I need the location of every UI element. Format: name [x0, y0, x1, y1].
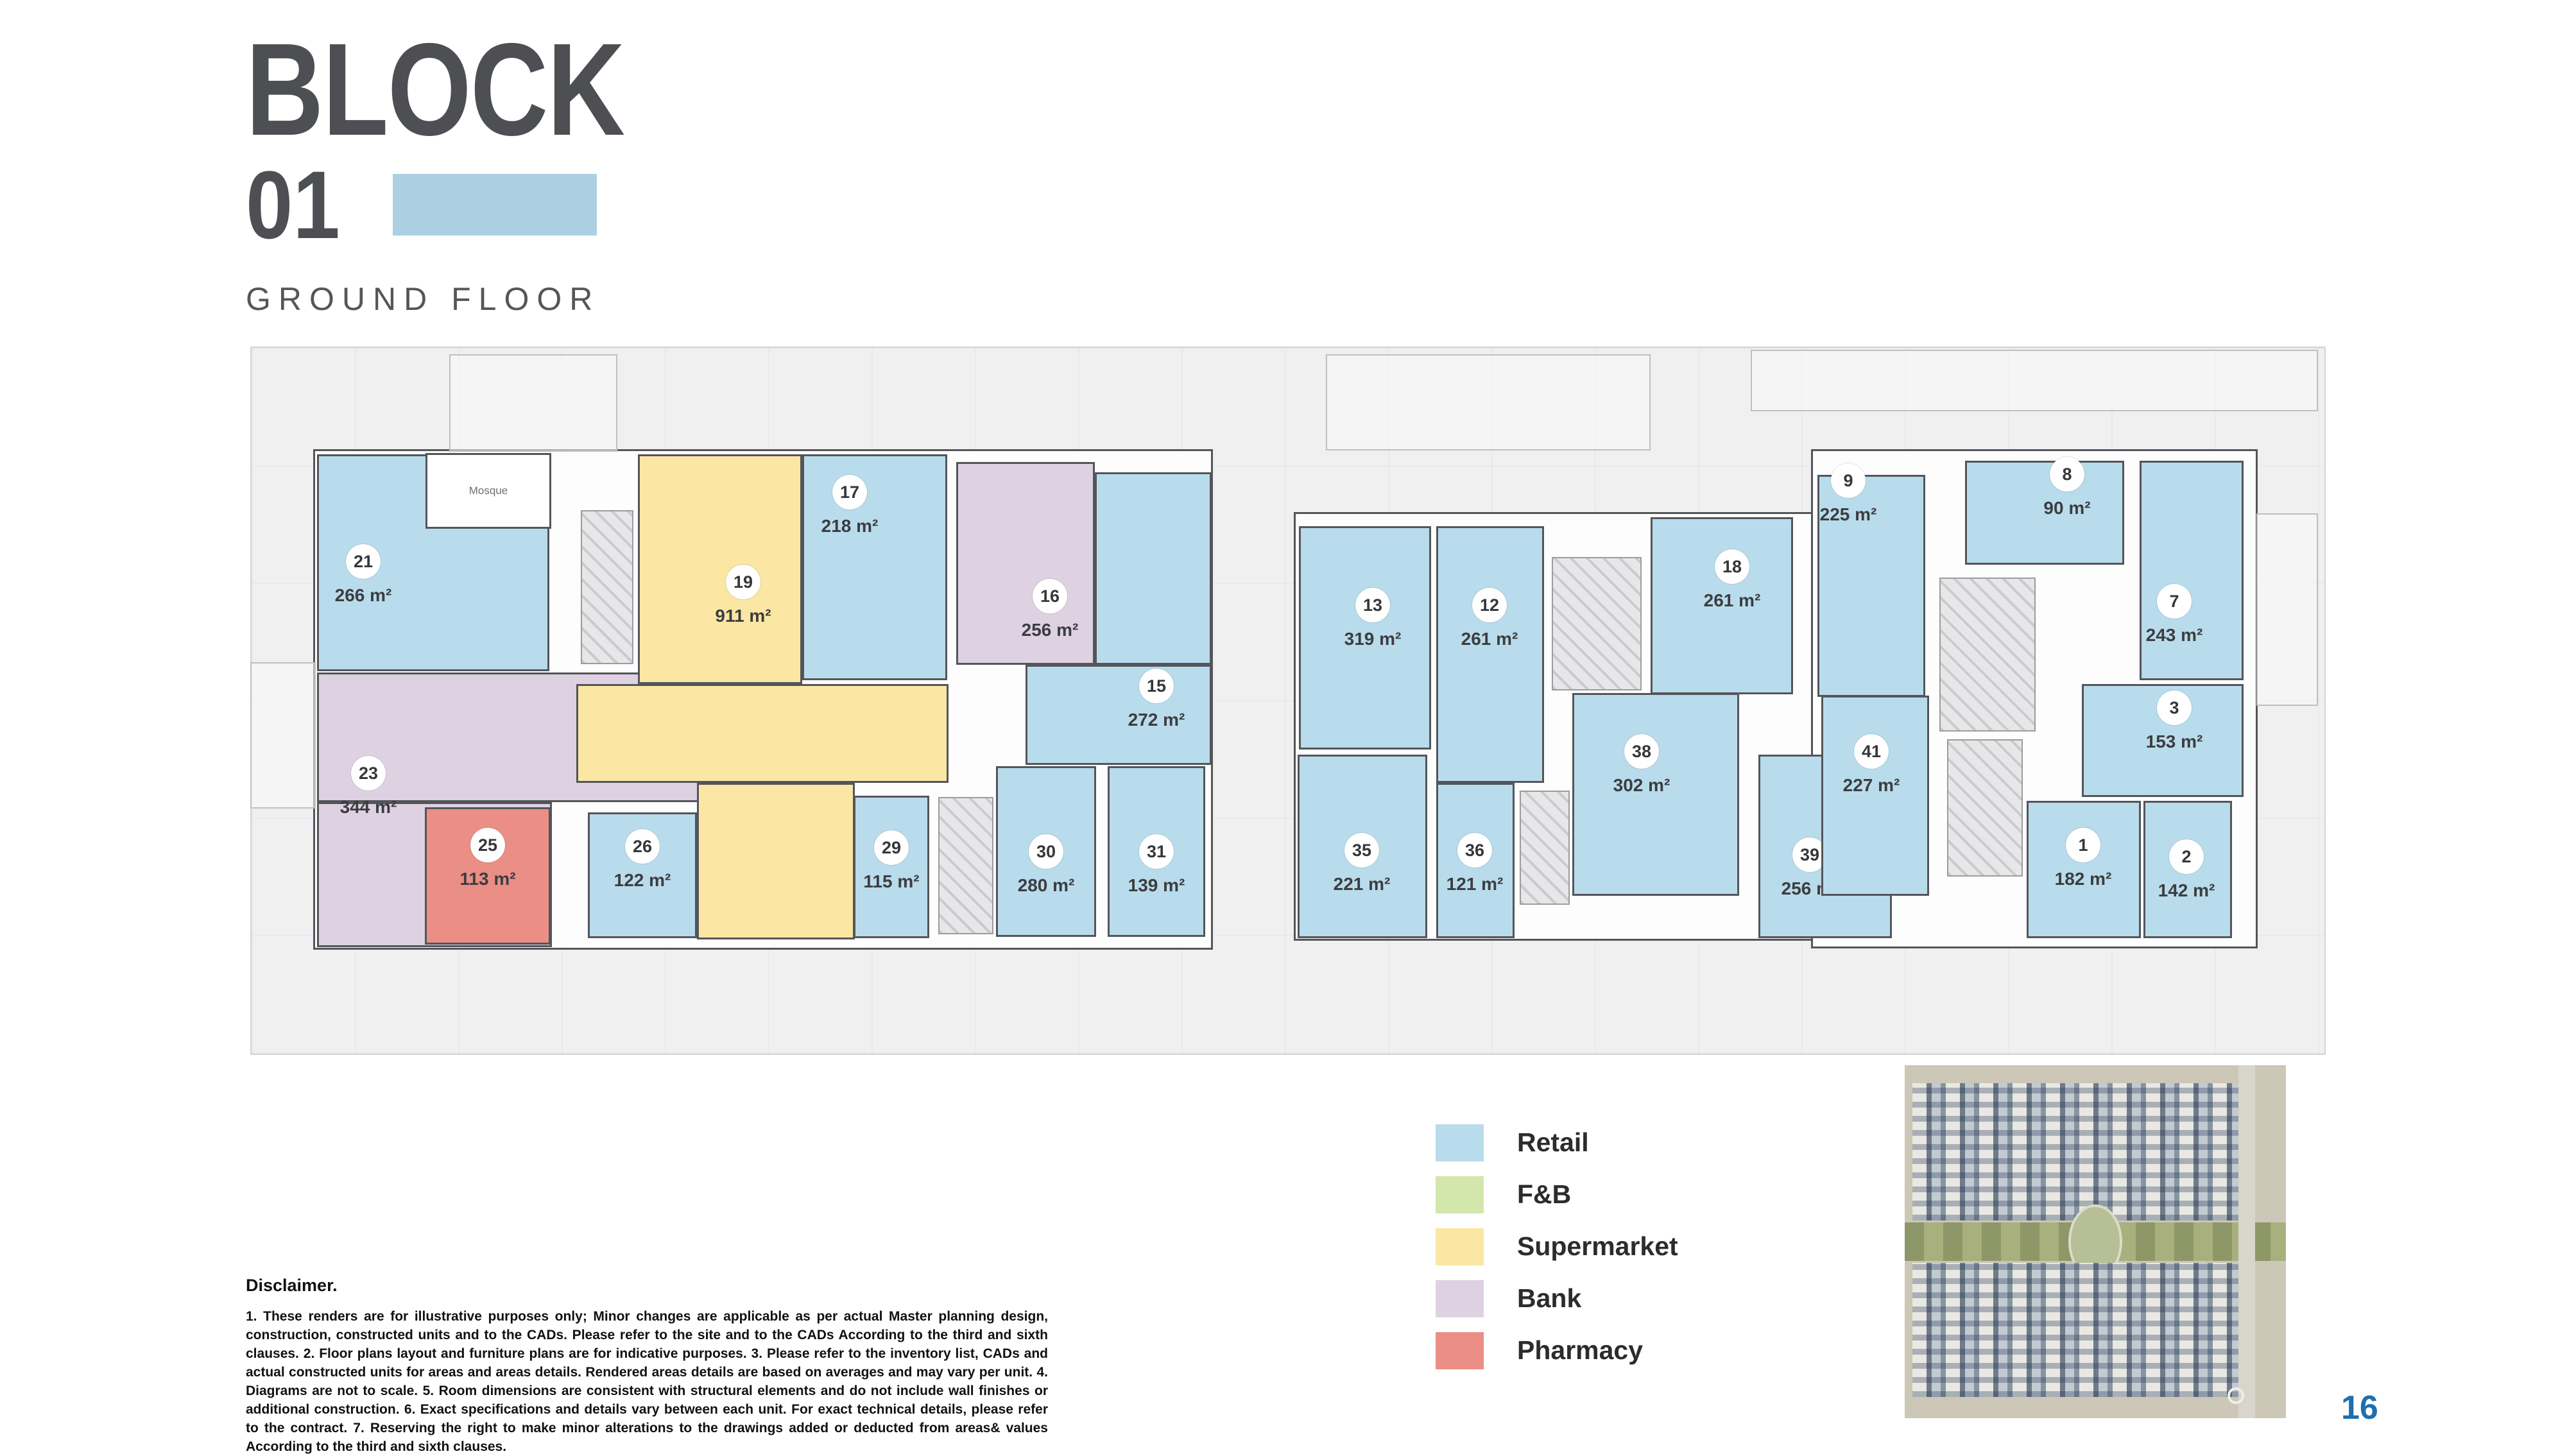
unit-41-region: [1821, 696, 1929, 896]
unit-29-area: 115 m²: [834, 871, 949, 892]
unit-1-area: 182 m²: [2025, 869, 2141, 889]
unit-13-area: 319 m²: [1315, 629, 1430, 649]
unit-12-region: [1436, 526, 1544, 783]
disclaimer-heading: Disclaimer.: [246, 1276, 1048, 1296]
unit-17-region: [802, 454, 947, 680]
unit-2-area: 142 m²: [2129, 880, 2244, 901]
unit-41-area: 227 m²: [1814, 775, 1929, 796]
unit-26-number-badge: 26: [625, 829, 660, 864]
stair-core-5: [1939, 578, 2036, 732]
legend-item-fnb: F&B: [1436, 1169, 1678, 1220]
structure-outline-3: [1751, 350, 2318, 411]
unit-19-region-2: [576, 684, 949, 783]
stair-core-1: [581, 510, 633, 664]
mosque-label: Mosque: [469, 484, 508, 497]
disclaimer: Disclaimer. 1. These renders are for ill…: [246, 1276, 1048, 1456]
unit-7-region: [2140, 461, 2244, 680]
unit-9-area: 225 m²: [1790, 504, 1906, 525]
mosque-room: Mosque: [425, 453, 551, 529]
legend-swatch-fnb: [1436, 1176, 1484, 1213]
unit-17-area: 218 m²: [792, 516, 907, 536]
structure-outline-4: [250, 662, 316, 809]
unit-3-area: 153 m²: [2116, 732, 2232, 752]
unit-17-number-badge: 17: [832, 475, 867, 510]
unit-29-number-badge: 29: [874, 830, 909, 865]
unit-18-number-badge: 18: [1715, 549, 1749, 584]
unit-1-number-badge: 1: [2066, 828, 2100, 862]
unit-21-number-badge: 21: [346, 544, 381, 579]
unit-8-area: 90 m²: [2009, 498, 2125, 518]
legend-swatch-pharmacy: [1436, 1332, 1484, 1369]
unit-31-area: 139 m²: [1099, 875, 1214, 896]
unit-19-region-1: [638, 454, 802, 684]
stair-core-3: [1552, 557, 1642, 690]
unit-19-area: 911 m²: [685, 606, 801, 626]
legend-item-bank: Bank: [1436, 1272, 1678, 1324]
unit-38-area: 302 m²: [1584, 775, 1699, 796]
unit-8-number-badge: 8: [2050, 457, 2084, 492]
unit-26-area: 122 m²: [585, 870, 700, 891]
stair-core-6: [1947, 739, 2023, 877]
unit-25-area: 113 m²: [430, 869, 545, 889]
unit-15-region-1: [1095, 472, 1212, 665]
unit-23-number-badge: 23: [351, 756, 386, 791]
unit-15-number-badge: 15: [1139, 669, 1174, 703]
site-map-buildings-south: [1912, 1263, 2248, 1397]
unit-35-number-badge: 35: [1344, 833, 1379, 868]
legend: RetailF&BSupermarketBankPharmacy: [1436, 1117, 1678, 1376]
disclaimer-body: 1. These renders are for illustrative pu…: [246, 1307, 1048, 1456]
site-map-buildings-north: [1912, 1083, 2248, 1221]
unit-19-number-badge: 19: [726, 565, 760, 599]
unit-30-area: 280 m²: [988, 875, 1104, 896]
unit-41-number-badge: 41: [1854, 734, 1889, 769]
unit-13-number-badge: 13: [1355, 588, 1390, 622]
legend-swatch-supermarket: [1436, 1228, 1484, 1265]
unit-29-region: [854, 796, 929, 938]
site-map-thumbnail: [1905, 1065, 2286, 1418]
structure-outline-1: [449, 354, 617, 452]
unit-23-area: 344 m²: [311, 797, 426, 818]
unit-16-number-badge: 16: [1033, 579, 1067, 613]
unit-7-number-badge: 7: [2157, 584, 2192, 619]
unit-2-number-badge: 2: [2169, 839, 2204, 874]
unit-3-number-badge: 3: [2157, 690, 2192, 725]
site-map-road: [2238, 1065, 2256, 1418]
unit-12-number-badge: 12: [1472, 588, 1507, 622]
legend-swatch-retail: [1436, 1124, 1484, 1161]
stair-core-2: [938, 797, 993, 934]
unit-12-area: 261 m²: [1432, 629, 1547, 649]
unit-9-number-badge: 9: [1831, 463, 1866, 498]
legend-label-retail: Retail: [1517, 1127, 1589, 1158]
unit-7-area: 243 m²: [2116, 625, 2232, 646]
unit-25-number-badge: 25: [470, 828, 505, 862]
compass-icon: [2228, 1387, 2244, 1404]
legend-label-fnb: F&B: [1517, 1179, 1571, 1210]
unit-15-area: 272 m²: [1099, 710, 1214, 730]
unit-31-number-badge: 31: [1139, 834, 1174, 869]
structure-outline-2: [1326, 354, 1651, 450]
unit-30-number-badge: 30: [1029, 834, 1063, 869]
legend-item-supermarket: Supermarket: [1436, 1220, 1678, 1272]
legend-item-pharmacy: Pharmacy: [1436, 1324, 1678, 1376]
unit-36-number-badge: 36: [1457, 833, 1492, 868]
unit-38-number-badge: 38: [1624, 734, 1659, 769]
legend-label-supermarket: Supermarket: [1517, 1231, 1678, 1262]
unit-16-area: 256 m²: [992, 620, 1108, 640]
legend-item-retail: Retail: [1436, 1117, 1678, 1169]
unit-21-area: 266 m²: [305, 585, 421, 606]
unit-36-area: 121 m²: [1417, 874, 1532, 895]
legend-label-pharmacy: Pharmacy: [1517, 1335, 1643, 1366]
unit-35-area: 221 m²: [1304, 874, 1420, 895]
page-number: 16: [2341, 1389, 2378, 1427]
legend-label-bank: Bank: [1517, 1283, 1581, 1314]
unit-19-region-3: [697, 783, 855, 939]
unit-18-area: 261 m²: [1674, 590, 1790, 611]
legend-swatch-bank: [1436, 1280, 1484, 1317]
structure-outline-5: [2256, 513, 2318, 706]
